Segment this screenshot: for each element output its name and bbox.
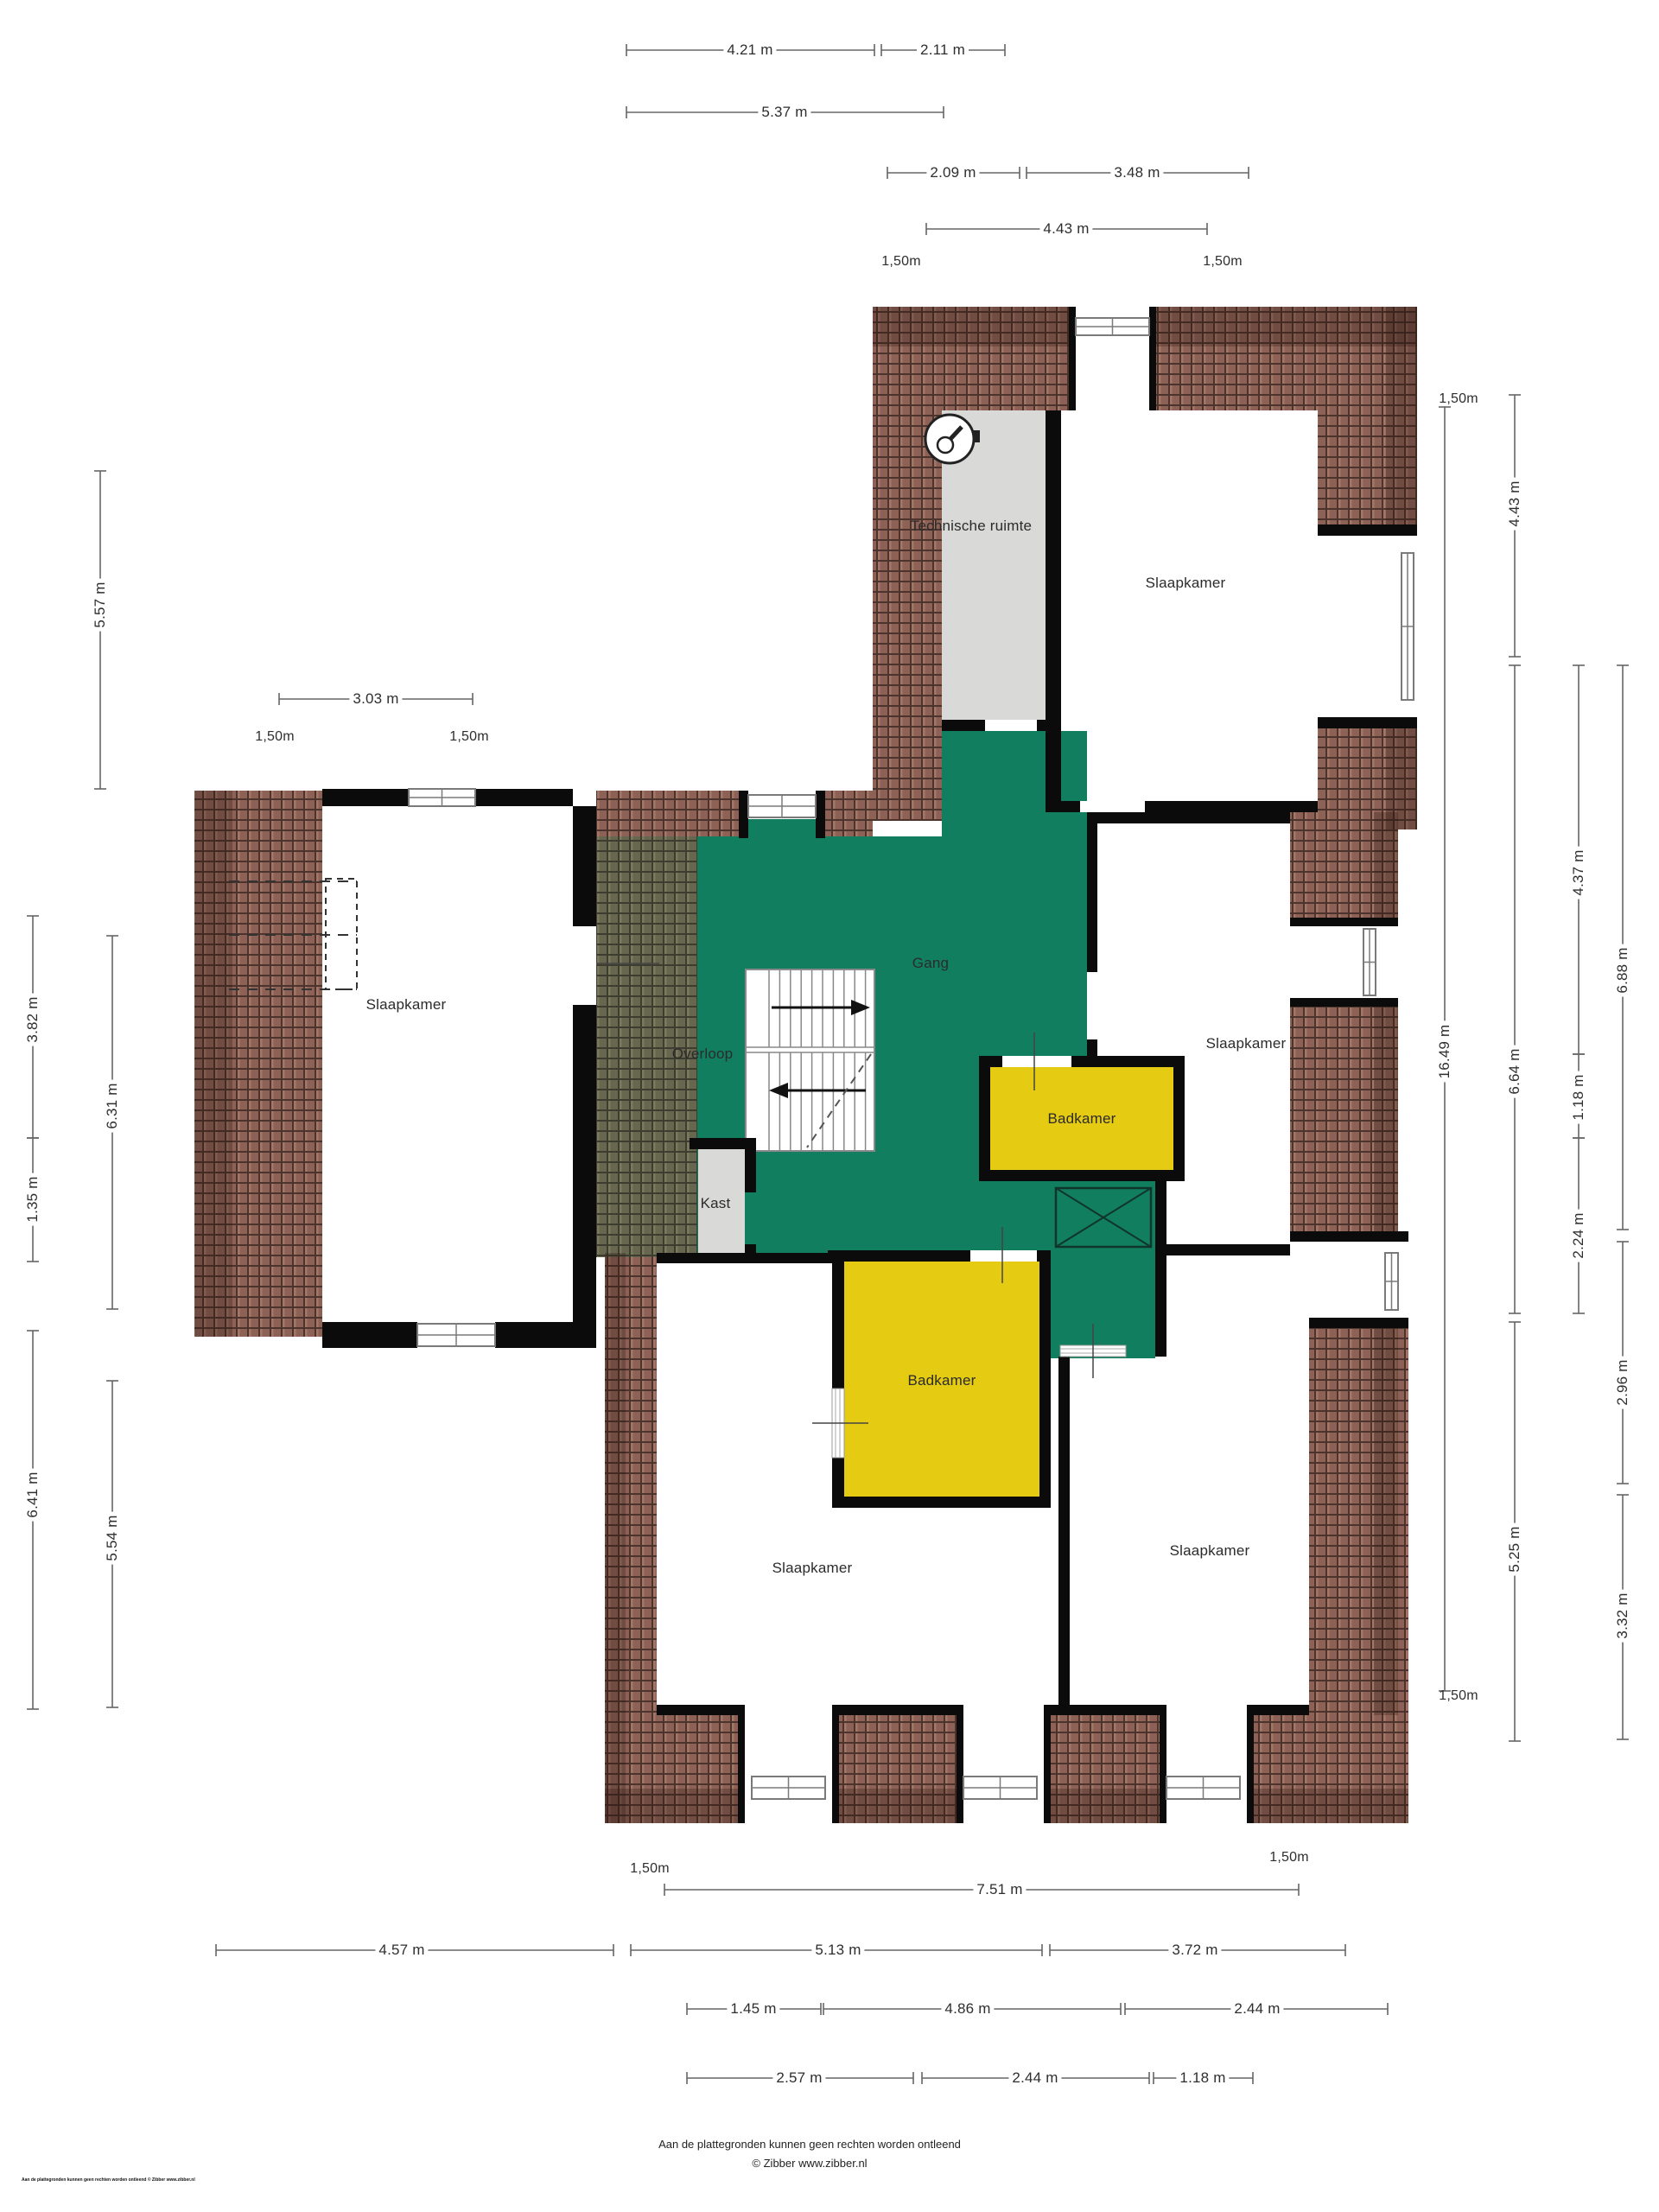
dimension-label: 6.88 m [1614, 944, 1631, 996]
staircase-icon [746, 969, 874, 1151]
dimension-label: 2.96 m [1614, 1356, 1631, 1408]
dimension-label: 2.44 m [1008, 2069, 1061, 2087]
floorplan-drawing [0, 0, 1659, 2212]
setback-height-label: 1,50m [1203, 254, 1242, 270]
room-label-badkamer-lower: Badkamer [907, 1372, 976, 1389]
dimension-label: 5.54 m [104, 1511, 121, 1564]
dimension-label: 4.86 m [941, 2000, 994, 2018]
footnote-small: Aan de plattegronden kunnen geen rechten… [22, 2177, 195, 2183]
setback-height-label: 1,50m [1439, 1688, 1478, 1704]
footer-copyright: © Zibber www.zibber.nl [752, 2157, 867, 2170]
dimension-label: 4.21 m [723, 41, 776, 59]
room-label-slaapkamer-mid: Slaapkamer [1206, 1035, 1287, 1052]
setback-height-label: 1,50m [881, 254, 920, 270]
dimension-label: 2.44 m [1230, 2000, 1283, 2018]
dimension-label: 4.37 m [1570, 846, 1587, 899]
dimension-label: 3.03 m [349, 690, 402, 708]
dimension-label: 3.32 m [1614, 1589, 1631, 1642]
room-label-technische-ruimte: Technische ruimte [911, 518, 1032, 535]
dimension-label: 2.24 m [1570, 1209, 1587, 1262]
floorplan-page: Technische ruimte Slaapkamer Slaapkamer … [0, 0, 1659, 2212]
dimension-label: 7.51 m [973, 1881, 1026, 1898]
room-label-slaapkamer-top: Slaapkamer [1146, 575, 1226, 592]
dimension-label: 6.31 m [104, 1079, 121, 1132]
dimension-label: 2.57 m [772, 2069, 825, 2087]
footer-disclaimer: Aan de plattegronden kunnen geen rechten… [658, 2138, 961, 2151]
dimension-label: 5.25 m [1506, 1522, 1523, 1575]
dimension-label: 5.57 m [92, 578, 109, 631]
room-label-badkamer-upper: Badkamer [1047, 1110, 1116, 1128]
dimension-label: 2.09 m [926, 164, 979, 181]
dimension-label: 4.57 m [375, 1942, 428, 1959]
setback-height-label: 1,50m [630, 1861, 669, 1877]
dimension-label: 6.41 m [24, 1468, 41, 1521]
room-label-slaapkamer-left: Slaapkamer [366, 996, 447, 1014]
dimension-label: 3.82 m [24, 993, 41, 1046]
dimension-label: 5.13 m [811, 1942, 864, 1959]
room-label-slaapkamer-bottom-left: Slaapkamer [772, 1560, 853, 1577]
dimension-label: 3.72 m [1168, 1942, 1221, 1959]
room-label-kast: Kast [701, 1195, 731, 1212]
dimension-label: 1.18 m [1176, 2069, 1229, 2087]
dimension-label: 6.64 m [1506, 1045, 1523, 1097]
dimension-label: 4.43 m [1039, 220, 1092, 238]
dimension-label: 4.43 m [1506, 477, 1523, 530]
room-label-slaapkamer-bottom-right: Slaapkamer [1170, 1542, 1250, 1560]
dimension-label: 3.48 m [1110, 164, 1163, 181]
setback-height-label: 1,50m [449, 729, 488, 745]
dimension-label: 16.49 m [1436, 1021, 1453, 1083]
dimension-label: 2.11 m [917, 41, 969, 59]
setback-height-label: 1,50m [1439, 391, 1478, 407]
room-label-gang: Gang [912, 955, 949, 972]
dimension-label: 1.18 m [1570, 1071, 1587, 1123]
dimension-label: 1.45 m [727, 2000, 779, 2018]
dimension-label: 5.37 m [758, 104, 810, 121]
room-label-overloop: Overloop [672, 1046, 734, 1063]
dimension-label: 1.35 m [24, 1173, 41, 1225]
setback-height-label: 1,50m [1269, 1850, 1308, 1866]
setback-height-label: 1,50m [255, 729, 294, 745]
